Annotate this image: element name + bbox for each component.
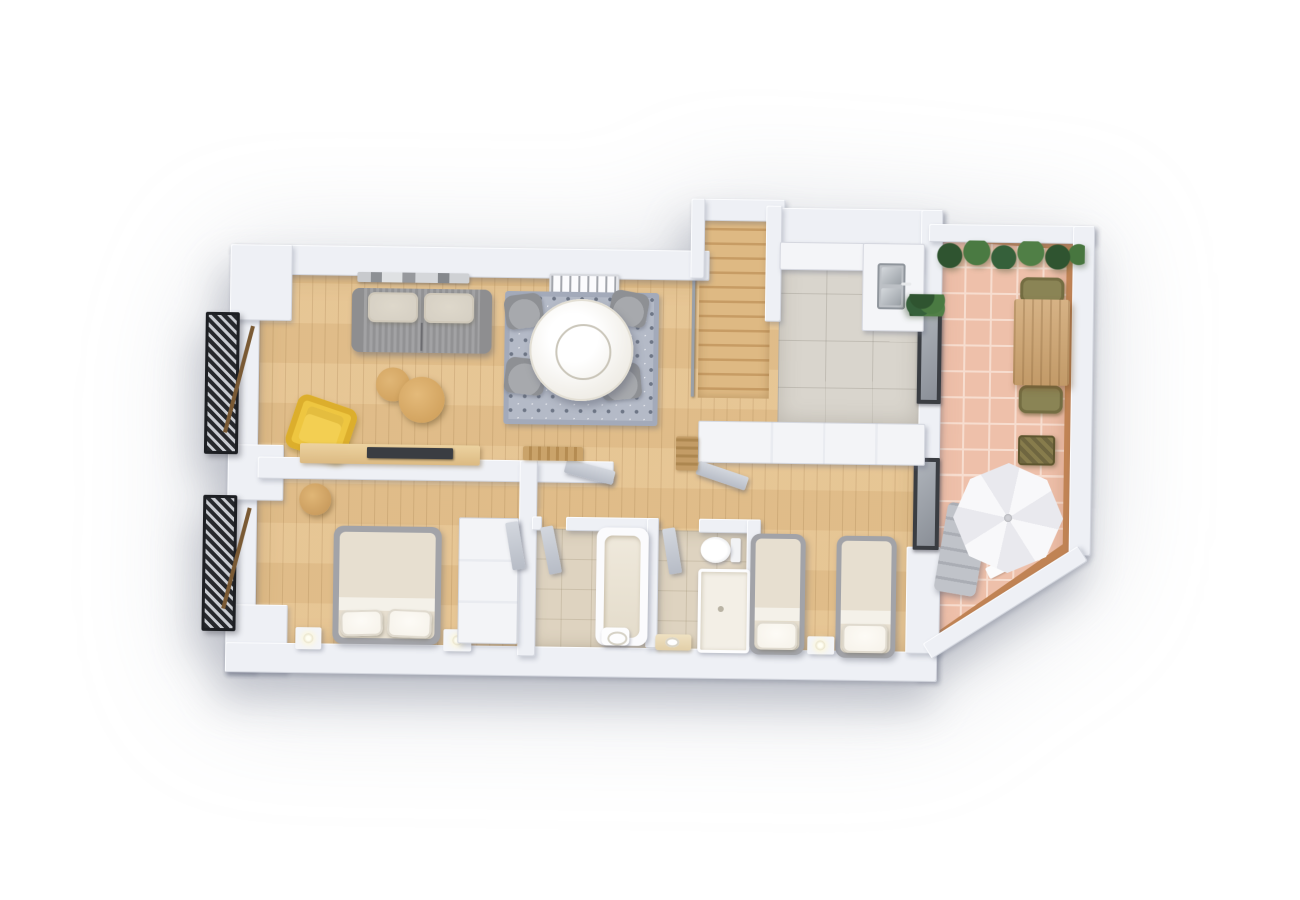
dining-table-inner-ring	[555, 324, 612, 381]
toilet	[700, 537, 740, 564]
shower-tray	[697, 569, 750, 654]
sofa-seat-seam	[420, 323, 422, 351]
corner-block-top-left	[230, 244, 293, 321]
sofa-cushion-right	[424, 293, 474, 324]
sink-basin-top	[881, 267, 901, 284]
double-bed-pillow-right	[387, 609, 432, 639]
outdoor-table	[1013, 299, 1070, 386]
bedroom2-terrace-window-glass	[917, 462, 936, 546]
living-window-shutter	[204, 312, 240, 454]
bedroom2-terrace-window-frame	[913, 458, 940, 550]
toilet-bowl	[700, 537, 730, 563]
single-bed-left	[749, 533, 806, 655]
nightstand-left-lamp	[303, 633, 313, 643]
bathroom1-washbasin-bowl	[607, 631, 627, 645]
apartment-floor-plan	[196, 184, 1103, 717]
sink-faucet	[901, 282, 911, 285]
double-bed	[332, 526, 442, 645]
bedroom2-nightstand-decor	[815, 640, 825, 650]
terrace-plant-left	[893, 294, 957, 317]
floor-plan-render-canvas: { "scene": { "kind": "3d-floor-plan-rend…	[0, 0, 1300, 900]
bathroom2-vanity	[655, 634, 691, 651]
single-bed-right	[835, 536, 897, 659]
single-bed-left-pillow	[755, 621, 797, 650]
stairbay-left-jamb	[690, 199, 705, 279]
outdoor-chair-bottom	[1019, 385, 1063, 414]
chrome-wall-shelf	[357, 272, 469, 284]
wicker-stool	[1018, 435, 1055, 466]
sofa-cushion-left	[368, 292, 418, 323]
bathroom1-washbasin	[601, 627, 629, 645]
terrace-plant-hedge	[935, 240, 1085, 270]
double-bed-pillow-left	[340, 610, 383, 637]
bathtub-basin	[603, 535, 640, 637]
hall-cabinet-row	[698, 421, 926, 466]
nightstand-left	[295, 627, 321, 649]
single-bed-right-pillow	[842, 624, 887, 654]
runner-mat	[676, 436, 698, 470]
parasol-pole-cap	[1004, 514, 1012, 522]
sofa	[351, 288, 492, 354]
sofa-armrest-right	[479, 290, 492, 354]
terrace-wall-right	[1069, 226, 1096, 556]
toilet-tank	[730, 538, 740, 562]
tv-screen	[367, 447, 453, 459]
shower-drain	[718, 606, 724, 612]
bedroom2-nightstand	[807, 636, 834, 654]
staircase-steps	[698, 216, 772, 399]
wooden-doormat	[523, 446, 583, 461]
bathroom2-vanity-basin	[665, 637, 679, 647]
sofa-armrest-left	[351, 288, 364, 352]
